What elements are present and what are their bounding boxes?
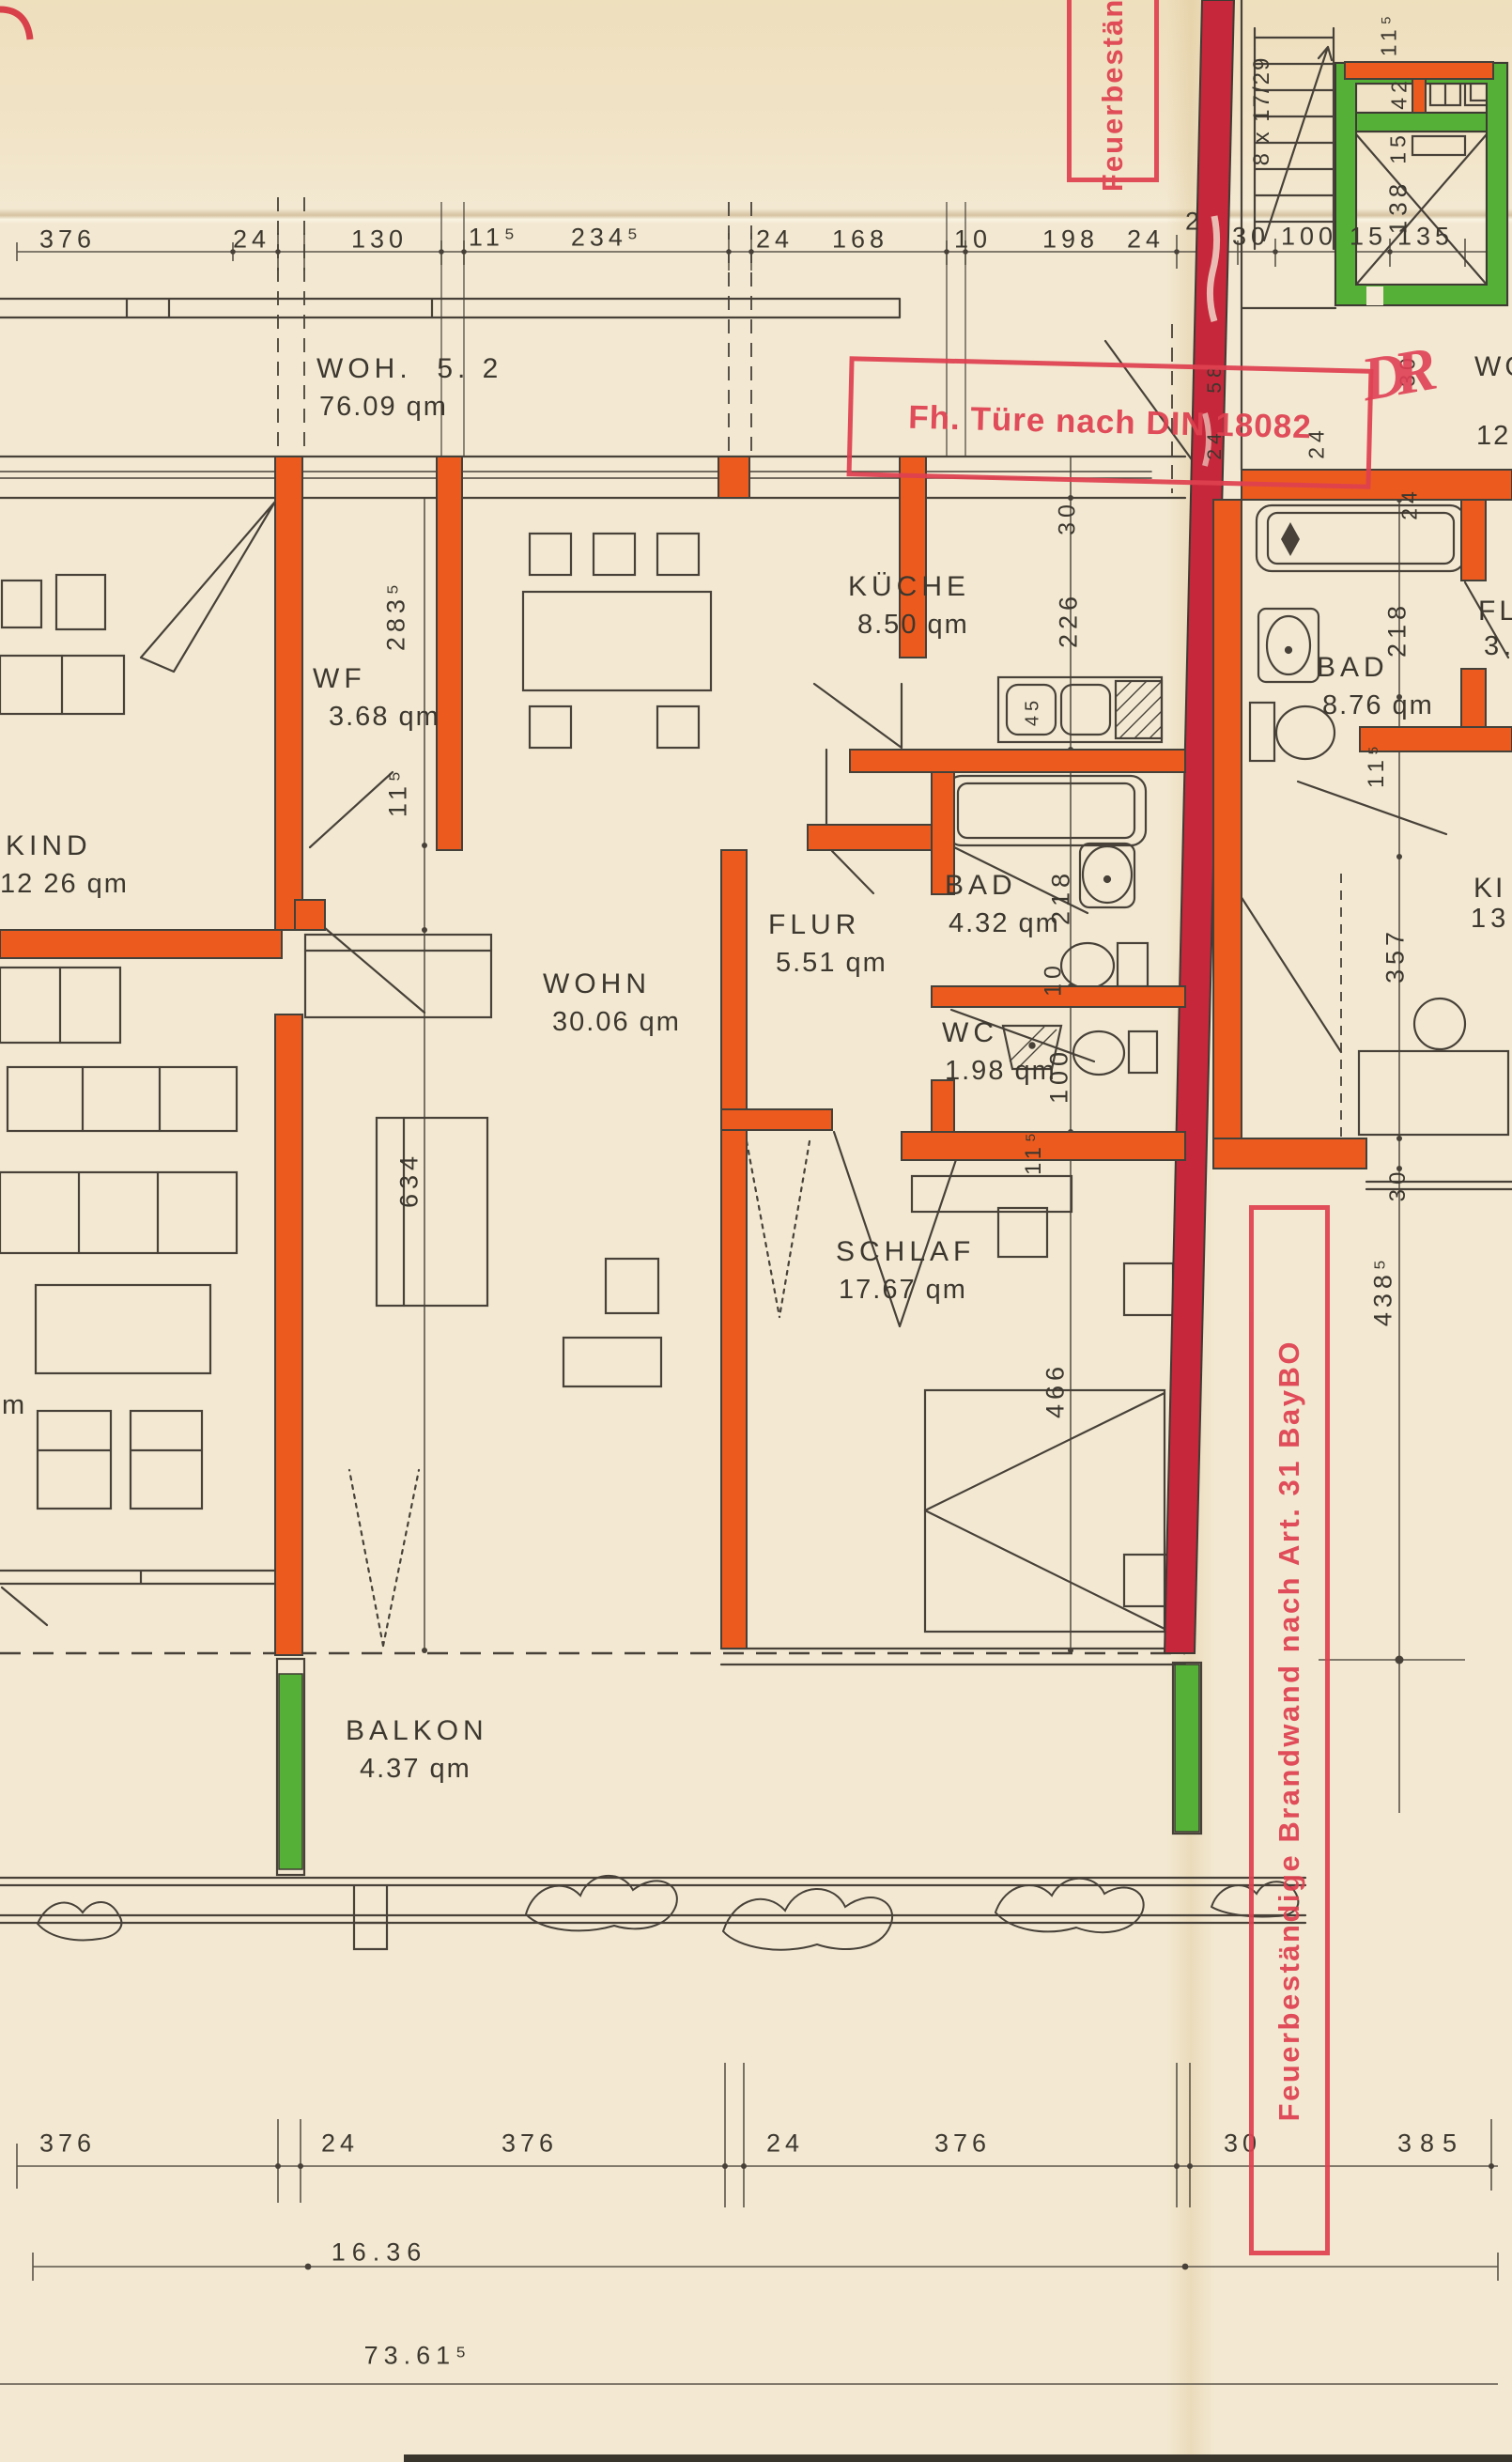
- stamp-feuerbestaendige-top: Feuerbeständige: [1067, 0, 1159, 182]
- room-area: 8.50 qm: [857, 610, 970, 641]
- dim-label: 30: [1055, 500, 1082, 535]
- room-name: KÜCHE: [848, 571, 970, 603]
- dim-label: 24: [756, 225, 794, 255]
- stamp-fh-tuere: Fh. Türe nach DIN 18082: [847, 356, 1374, 489]
- stamp-dr-monogram: DR: [1356, 335, 1431, 417]
- dim-label: 10: [1041, 961, 1068, 997]
- floorplan-page: 3762413011⁵234⁵241681019824230100151358 …: [0, 0, 1512, 2462]
- dim-label: 15: [1386, 131, 1412, 164]
- dim-label: 218: [1383, 601, 1412, 658]
- room-label-wc: WC1.98 qm: [942, 1017, 1057, 1087]
- dim-label: 42: [1387, 76, 1412, 110]
- dim-label: 168: [832, 225, 888, 255]
- dim-label: FL: [1478, 596, 1512, 627]
- room-name: BAD: [945, 870, 1060, 902]
- dim-label: 45: [1023, 696, 1044, 726]
- dim-label: 385: [1397, 2129, 1465, 2159]
- dim-label: 634: [395, 1152, 424, 1208]
- room-label-woh-5-2: WOH. 5. 276.09 qm: [316, 353, 502, 423]
- dim-label: 11⁵: [1364, 741, 1390, 788]
- dim-label: 16.36: [332, 2238, 428, 2268]
- dim-label: 11⁵: [384, 766, 413, 817]
- dim-label: 8 x 17/29: [1249, 56, 1275, 166]
- dim-label: 24: [321, 2129, 359, 2159]
- dim-label: 100: [1281, 223, 1337, 252]
- room-area: 30.06 qm: [552, 1007, 681, 1038]
- dim-label: 13.: [1471, 904, 1512, 935]
- dim-label: 11⁵: [1021, 1128, 1047, 1175]
- room-label-wohn: WOHN30.06 qm: [543, 968, 681, 1038]
- dim-label: 11⁵: [1377, 11, 1402, 56]
- dim-label: WOH: [1474, 351, 1512, 383]
- dim-label: 30: [1385, 1168, 1412, 1202]
- dim-label: 10: [954, 225, 992, 255]
- stamp-top-text: Feuerbeständige: [1096, 0, 1130, 192]
- dim-label: 3.3: [1484, 631, 1512, 662]
- room-label-schlaf: SCHLAF17.67 qm: [836, 1236, 975, 1306]
- room-label-balkon: BALKON4.37 qm: [346, 1715, 488, 1785]
- room-area: 8.76 qm: [1322, 690, 1434, 721]
- stamp-brandwand: Feuerbeständige Brandwand nach Art. 31 B…: [1249, 1205, 1330, 2255]
- dim-label: 15: [1350, 223, 1387, 252]
- room-area: 1.98 qm: [945, 1056, 1057, 1087]
- dim-label: 12 6: [1476, 421, 1512, 452]
- room-name: BAD: [1317, 652, 1434, 684]
- dim-label: 130: [351, 225, 408, 255]
- room-area: 17.67 qm: [839, 1275, 975, 1306]
- room-area: 4.32 qm: [949, 908, 1060, 939]
- room-name: WF: [313, 663, 440, 695]
- dim-label: m: [2, 1390, 29, 1421]
- dim-label: 11⁵: [469, 224, 519, 253]
- room-area: 3.68 qm: [329, 702, 440, 733]
- room-name: WOHN: [543, 968, 681, 1000]
- dim-label: KI: [1473, 873, 1505, 905]
- room-label-kind: KIND12 26 qm: [6, 830, 129, 900]
- dim-label: 376: [39, 225, 96, 255]
- dim-label: 234⁵: [571, 224, 642, 253]
- room-label-bad: BAD8.76 qm: [1317, 652, 1434, 721]
- dim-label: 466: [1041, 1362, 1071, 1418]
- dim-label: 24: [1397, 487, 1423, 520]
- room-label-bad: BAD4.32 qm: [945, 870, 1060, 939]
- dim-label: 198: [1042, 225, 1099, 255]
- dim-label: 438⁵: [1369, 1255, 1398, 1326]
- dim-label: 24: [233, 225, 270, 255]
- dim-label: 2: [1185, 208, 1204, 237]
- dim-label: 283⁵: [382, 580, 411, 651]
- room-name: WOH. 5. 2: [316, 353, 502, 385]
- dim-label: 73.61⁵: [364, 2342, 472, 2371]
- room-label-flur: FLUR5.51 qm: [768, 909, 887, 979]
- dim-label: 24: [1127, 225, 1165, 255]
- room-area: 4.37 qm: [360, 1754, 488, 1785]
- room-name: SCHLAF: [836, 1236, 975, 1268]
- stamp-fh-text: Fh. Türe nach DIN 18082: [908, 399, 1312, 446]
- dim-label: 357: [1381, 927, 1411, 983]
- room-label-wf: WF3.68 qm: [313, 663, 440, 733]
- dim-label: 376: [501, 2129, 558, 2159]
- room-name: WC: [942, 1017, 1057, 1049]
- room-label-küche: KÜCHE8.50 qm: [848, 571, 970, 641]
- dim-label: 376: [39, 2129, 96, 2159]
- room-name: BALKON: [346, 1715, 488, 1747]
- room-area: 12 26 qm: [0, 869, 129, 900]
- dim-label: 226: [1055, 592, 1084, 648]
- dim-label: 376: [934, 2129, 991, 2159]
- dim-label: 30: [1232, 223, 1270, 252]
- room-area: 5.51 qm: [776, 948, 887, 979]
- room-name: FLUR: [768, 909, 887, 941]
- room-name: KIND: [6, 830, 129, 862]
- dim-label: 24: [766, 2129, 804, 2159]
- stamp-brandwand-text: Feuerbeständige Brandwand nach Art. 31 B…: [1273, 1339, 1306, 2121]
- dim-label: 138: [1384, 179, 1413, 234]
- room-area: 76.09 qm: [319, 392, 502, 423]
